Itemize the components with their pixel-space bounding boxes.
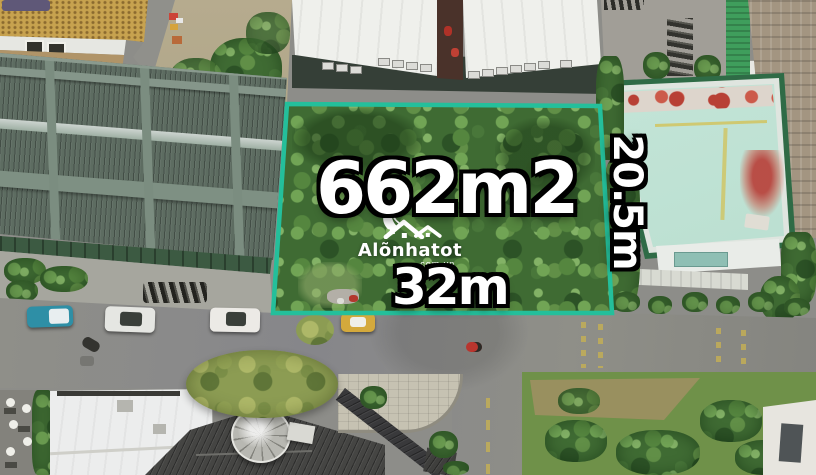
- aerial-land-plot-photo: Alõnhatot .com.vn 662m2 32m 20.5m: [0, 0, 816, 475]
- area-measurement-label: 662m2: [316, 152, 568, 224]
- frontage-measurement-label: 32m: [392, 262, 504, 312]
- side-measurement-label: 20.5m: [607, 134, 647, 269]
